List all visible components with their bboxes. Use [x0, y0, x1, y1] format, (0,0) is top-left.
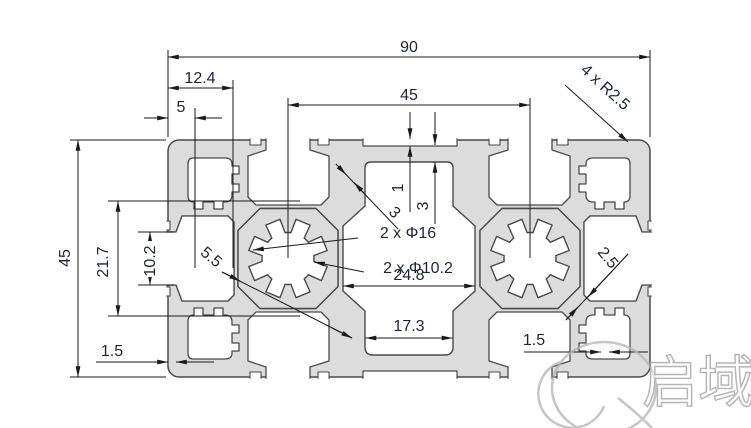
watermark-char-1: 启 [642, 351, 698, 414]
technical-drawing-canvas: 90 12.4 5 45 4 x R2.5 45 [0, 0, 751, 428]
svg-text:17.3: 17.3 [393, 318, 424, 335]
svg-text:2 x Φ16: 2 x Φ16 [380, 225, 436, 242]
svg-text:4 x R2.5: 4 x R2.5 [577, 61, 633, 114]
svg-text:1.5: 1.5 [523, 332, 545, 349]
svg-text:3: 3 [415, 201, 432, 210]
svg-text:5: 5 [177, 99, 186, 116]
profile-drawing-svg: 90 12.4 5 45 4 x R2.5 45 [0, 0, 751, 428]
svg-text:12.4: 12.4 [184, 70, 215, 87]
svg-text:21.7: 21.7 [95, 246, 112, 277]
svg-text:45: 45 [400, 87, 418, 104]
watermark-char-2: 域 [698, 351, 751, 414]
svg-text:24.8: 24.8 [393, 267, 424, 284]
svg-text:10.2: 10.2 [142, 245, 159, 276]
svg-text:1: 1 [390, 183, 407, 192]
svg-text:45: 45 [57, 249, 74, 267]
svg-text:1.5: 1.5 [101, 343, 123, 360]
svg-text:90: 90 [400, 39, 418, 56]
